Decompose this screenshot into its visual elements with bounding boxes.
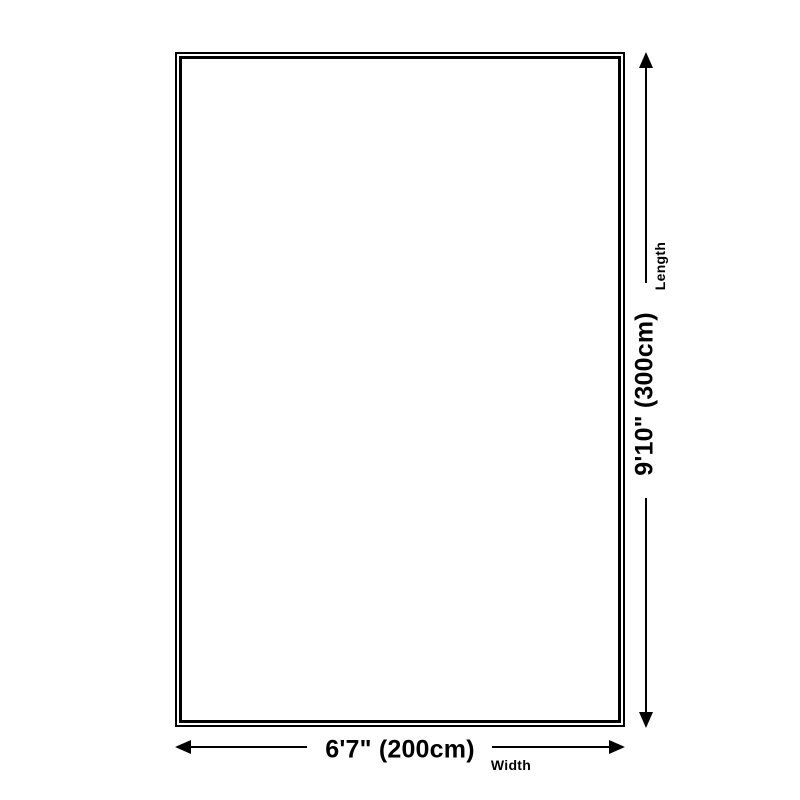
length-arrow-line-top (645, 65, 647, 283)
length-dimension-value: 9'10" (300cm) (631, 312, 660, 476)
width-dimension-value: 6'7" (200cm) (325, 736, 474, 765)
width-label: Width (491, 757, 531, 773)
length-arrow-line-bottom (645, 498, 647, 712)
arrow-right-icon (609, 740, 625, 754)
length-label: Length (652, 242, 668, 290)
arrow-down-icon (639, 712, 653, 728)
width-arrow-line-right (492, 746, 610, 748)
width-arrow-line-left (188, 746, 307, 748)
dimension-diagram: Length 9'10" (300cm) 6'7" (200cm) Width (0, 0, 800, 800)
rug-outline (175, 52, 625, 727)
rug-inner-border (179, 56, 621, 723)
